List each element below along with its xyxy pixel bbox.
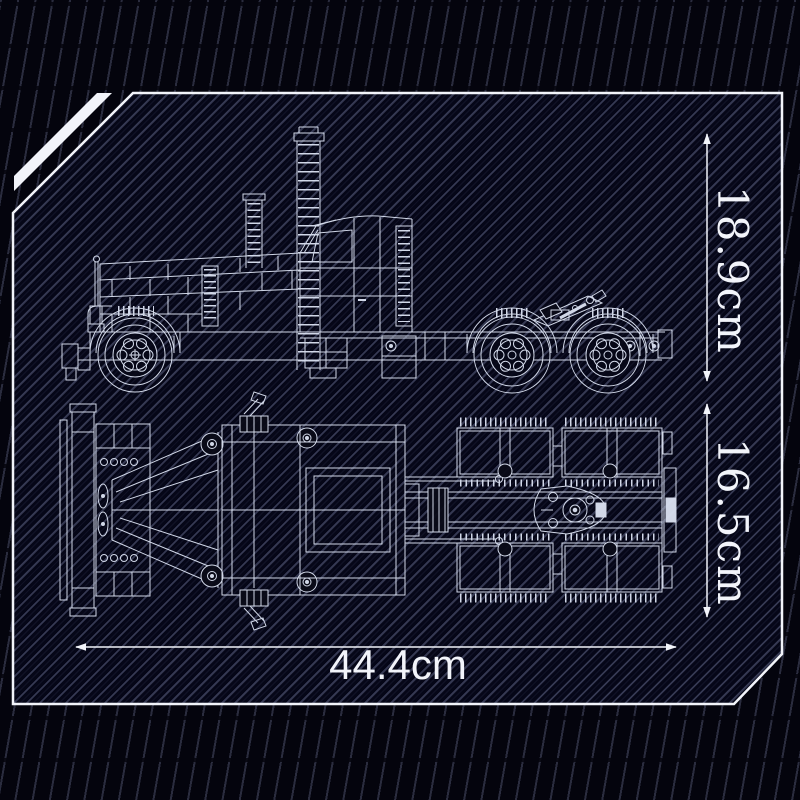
blueprint-poster: { "frame": { "stroke_color": "#f2f4fa" }… xyxy=(0,0,800,800)
width-dimension-label: 16.5cm xyxy=(711,438,753,607)
length-dimension-label: 44.4cm xyxy=(298,644,498,686)
corner-accent-stripe xyxy=(14,93,112,191)
frame-border xyxy=(13,93,782,704)
height-dimension-label: 18.9cm xyxy=(711,186,753,355)
truck-side-view-blueprint xyxy=(62,127,672,393)
truck-top-view-blueprint xyxy=(60,392,676,630)
